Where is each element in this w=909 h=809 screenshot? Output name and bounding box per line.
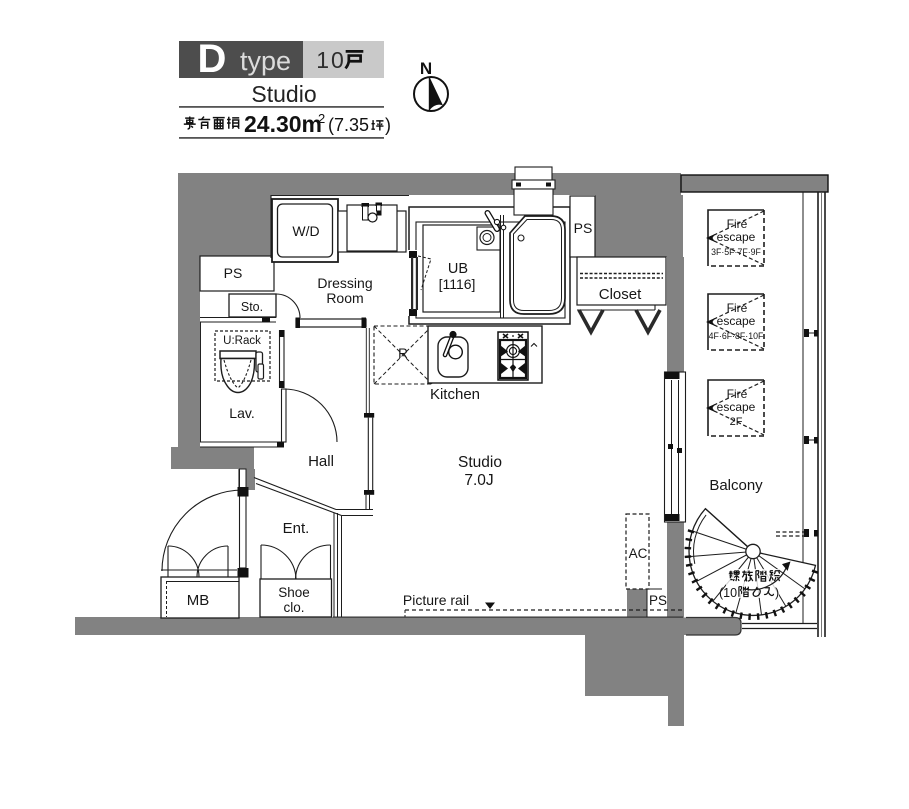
svg-text:Shoe: Shoe [278, 585, 310, 600]
svg-text:escape: escape [717, 400, 756, 414]
svg-text:[1116]: [1116] [439, 276, 476, 292]
svg-text:Room: Room [326, 290, 363, 306]
svg-text:PS: PS [224, 265, 243, 281]
svg-text:PS: PS [574, 220, 593, 236]
svg-text:Studio: Studio [458, 454, 502, 471]
svg-text:Dressing: Dressing [317, 275, 372, 291]
svg-text:Lav.: Lav. [229, 405, 254, 421]
svg-text:3F·5F·7F·9F: 3F·5F·7F·9F [711, 247, 761, 257]
svg-text:U:Rack: U:Rack [223, 335, 261, 347]
svg-text:Fire: Fire [727, 387, 748, 401]
svg-text:W/D: W/D [292, 223, 319, 239]
svg-text:Fire: Fire [727, 217, 748, 231]
svg-text:Studio: Studio [251, 81, 316, 107]
svg-text:(7.35: (7.35 [328, 115, 369, 135]
svg-text:Closet: Closet [599, 286, 642, 303]
svg-text:): ) [385, 115, 391, 135]
svg-text:4F·6F·8F·10F: 4F·6F·8F·10F [709, 331, 764, 341]
svg-text:24.30m: 24.30m [244, 111, 322, 137]
svg-text:N: N [420, 59, 432, 78]
svg-text:): ) [775, 586, 779, 600]
svg-text:7.0J: 7.0J [464, 472, 493, 489]
svg-text:2F: 2F [730, 416, 743, 428]
svg-text:Kitchen: Kitchen [430, 386, 480, 403]
svg-text:10: 10 [316, 47, 346, 73]
svg-text:escape: escape [717, 230, 756, 244]
svg-text:Fire: Fire [727, 301, 748, 315]
svg-text:PS: PS [649, 593, 667, 608]
svg-text:(10: (10 [719, 586, 737, 600]
svg-text:Hall: Hall [308, 453, 334, 470]
svg-text:MB: MB [187, 592, 210, 609]
svg-text:D: D [198, 37, 227, 81]
svg-text:Picture rail: Picture rail [403, 592, 469, 608]
svg-text:Sto.: Sto. [241, 300, 263, 314]
svg-text:clo.: clo. [283, 600, 304, 615]
svg-text:2: 2 [318, 111, 325, 126]
svg-text:R: R [398, 346, 408, 361]
svg-text:escape: escape [717, 314, 756, 328]
svg-text:type: type [240, 46, 291, 76]
svg-text:Balcony: Balcony [709, 477, 763, 494]
svg-text:AC: AC [629, 546, 648, 561]
svg-text:Ent.: Ent. [283, 520, 310, 537]
svg-text:UB: UB [448, 261, 468, 277]
